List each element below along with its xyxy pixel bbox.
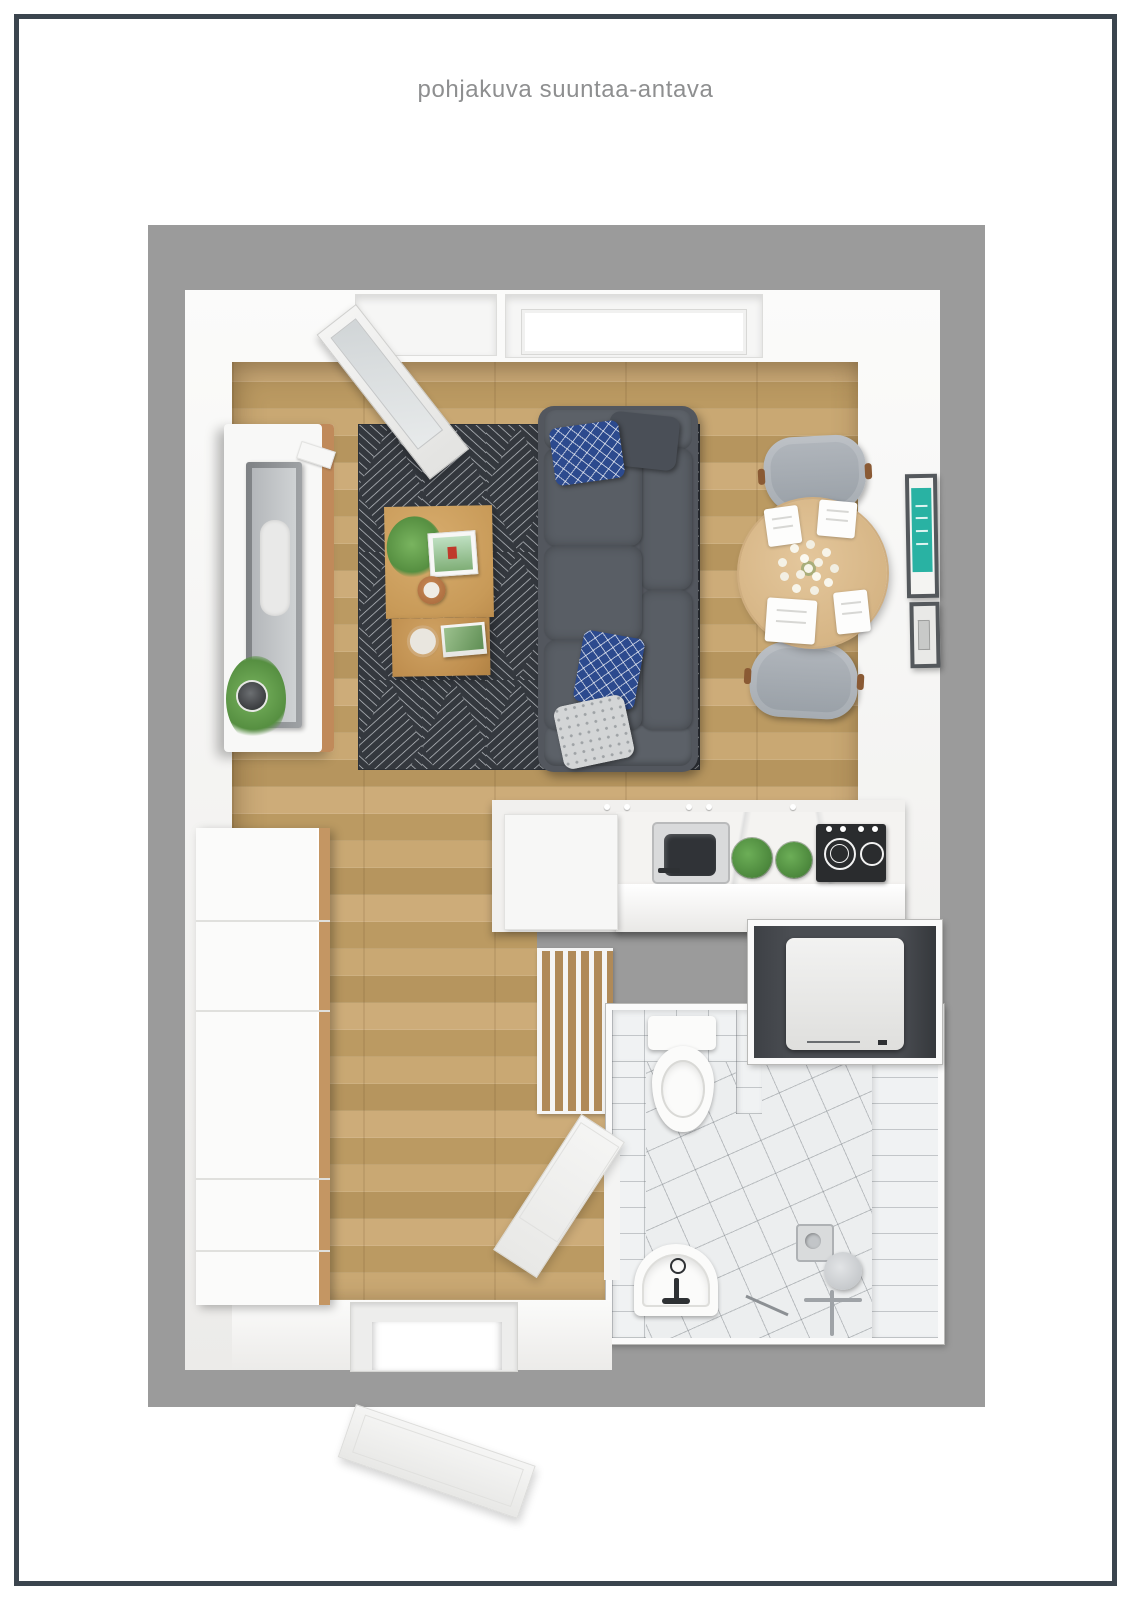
cabinet-knob [604,804,610,810]
washing-machine [786,938,904,1050]
kitchen-cabinet-island [504,814,618,930]
art-mount [918,620,931,650]
book [427,530,478,577]
stove-burner-large [824,838,856,870]
slatted-bench [537,948,613,1114]
cabinet-section [196,1252,330,1305]
candle [423,582,439,598]
bathroom-doorway [604,1154,620,1280]
sink-drain [670,1258,686,1274]
induction-stove [816,824,886,882]
cabinet-knob [706,804,712,810]
stove-knob [826,826,832,832]
cabinet-section [196,1180,330,1252]
flower-centerpiece [804,564,813,573]
candle [410,628,436,654]
bathroom-wall-right [872,1060,938,1338]
entry-opening [372,1322,502,1370]
magazine-cover [444,625,484,652]
tv-sideboard [224,424,334,752]
stove-knob [858,826,864,832]
cabinet-section [196,922,330,1012]
coffee-table-large [384,505,494,619]
art-poster [911,488,932,572]
stove-knob [840,826,846,832]
sofa [538,406,698,772]
stove-knob [872,826,878,832]
cabinet-knob [790,804,796,810]
window-sill [521,309,747,355]
tv-stand-base [260,520,290,616]
plant-pot [238,682,266,710]
cabinet-knob [624,804,630,810]
cabinet-section [196,1012,330,1180]
stove-burner-ring [830,844,849,863]
plan-disclaimer-title: pohjakuva suuntaa-antava [0,76,1131,104]
pillow-navy [548,419,625,486]
window-main [505,294,763,358]
tv-remote [296,441,336,469]
dining-table [739,499,887,647]
wall-art-small [909,602,940,669]
shower-pipe-vertical [830,1290,834,1336]
shower-mixer-dial [805,1233,821,1249]
coffee-table-small [392,617,491,677]
washer-niche [748,920,942,1064]
sofa-back-cushion [640,590,692,730]
kitchen-block [492,800,905,932]
faucet [658,868,680,873]
place-setting [765,597,818,644]
book-logo [447,546,457,559]
toilet-tank [648,1016,716,1050]
herb-plant [732,838,772,878]
cabinet-knob [686,804,692,810]
cabinet-section [196,828,330,922]
stove-burner-small [860,842,884,866]
kitchen-sink [652,822,730,884]
wardrobe-cabinet [196,828,330,1305]
bowl [417,576,445,604]
magazines [441,622,488,658]
place-setting [764,505,803,547]
place-setting [833,589,871,634]
shower-head [824,1252,862,1290]
sink-faucet-bar [662,1298,690,1304]
sofa-seat-cushion [544,546,642,640]
herb-plant [776,842,812,878]
shower-mixer-plate [796,1224,834,1262]
place-setting [817,499,858,538]
wall-art-teal [905,474,939,599]
dining-chair-bottom [748,639,860,721]
